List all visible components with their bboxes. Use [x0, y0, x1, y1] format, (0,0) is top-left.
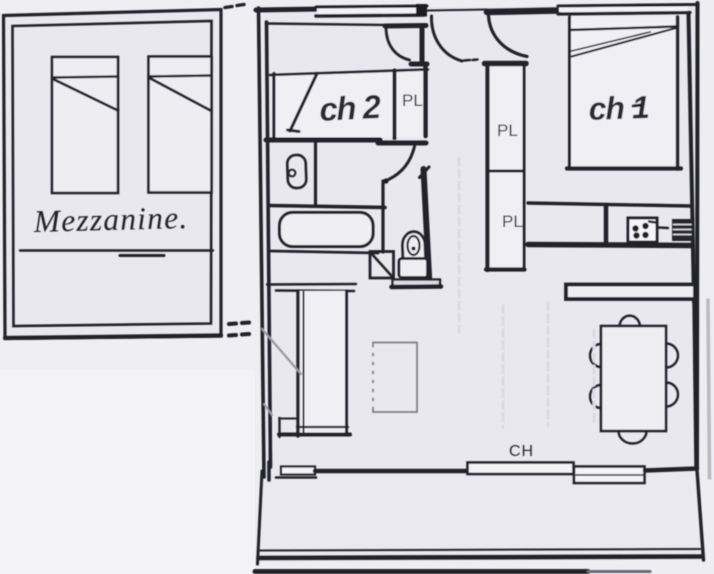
svg-text:PL: PL	[497, 121, 518, 140]
svg-text:CH: CH	[509, 443, 534, 460]
svg-text:PL: PL	[502, 212, 523, 231]
svg-text:Mezzanine.: Mezzanine.	[32, 200, 188, 239]
svg-text:ch 2: ch 2	[318, 88, 382, 128]
svg-text:PL: PL	[402, 91, 423, 110]
svg-text:ch 1: ch 1	[588, 89, 649, 127]
